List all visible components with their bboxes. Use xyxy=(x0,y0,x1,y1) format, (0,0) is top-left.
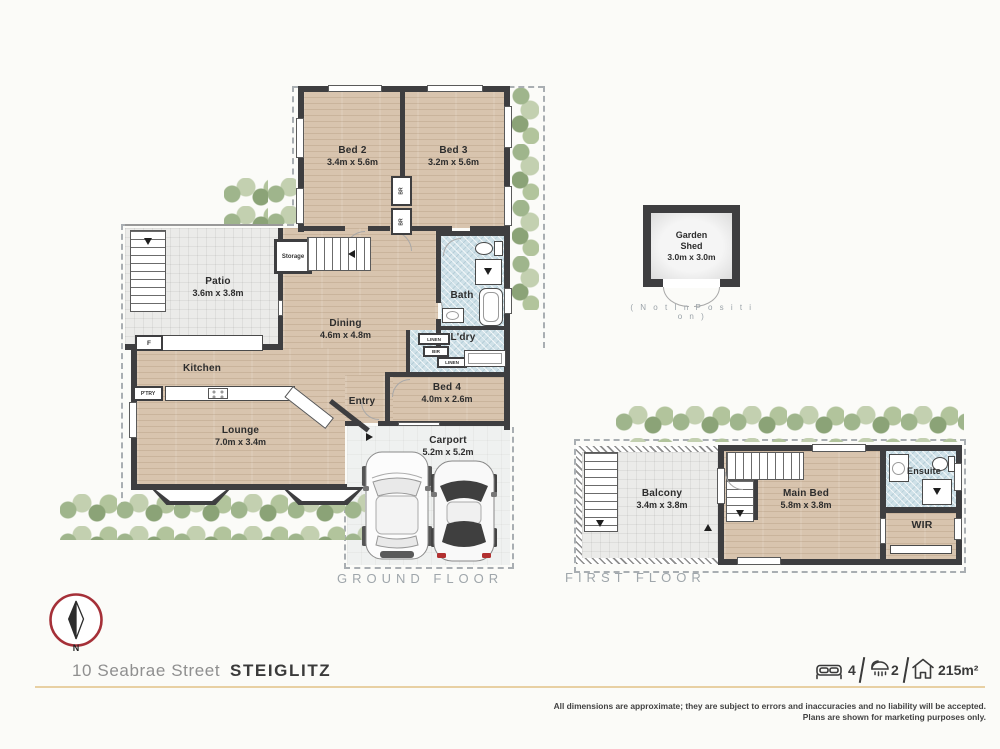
window xyxy=(812,444,866,452)
fridge-space: F xyxy=(135,335,163,351)
stair-arrow-left xyxy=(348,250,355,258)
compass-north-label: N xyxy=(73,643,80,653)
house-area-icon xyxy=(911,658,935,681)
car-sports xyxy=(431,460,497,562)
room-label-bed2: Bed 2 3.4m x 5.6m xyxy=(300,144,405,169)
shed-floor: Garden Shed 3.0m x 3.0m xyxy=(651,213,732,279)
wall xyxy=(436,326,506,330)
floor-area: 215m² xyxy=(938,662,978,678)
room-label-main-bed: Main Bed 5.8m x 3.8m xyxy=(742,487,870,512)
window xyxy=(504,288,512,314)
room-label-kitchen: Kitchen xyxy=(166,362,238,375)
shower-icon xyxy=(868,659,892,681)
kitchen-bench-lower xyxy=(165,386,295,401)
window xyxy=(398,422,440,426)
room-label-bed4: Bed 4 4.0m x 2.6m xyxy=(392,381,502,406)
pantry: P'TRY xyxy=(133,386,163,401)
footer: N 10 Seabrae Street STEIGLITZ 4 2 215m² … xyxy=(0,585,1000,749)
address-suburb: STEIGLITZ xyxy=(230,661,331,681)
baths-count: 2 xyxy=(891,662,899,678)
robe-br: BR xyxy=(391,208,412,235)
room-label-bed3: Bed 3 3.2m x 5.6m xyxy=(402,144,505,169)
wall xyxy=(385,372,508,377)
window xyxy=(954,463,962,491)
room-label-balcony: Balcony 3.4m x 3.8m xyxy=(606,487,718,512)
room-label-patio: Patio 3.6m x 3.8m xyxy=(162,275,274,300)
window xyxy=(504,106,512,148)
stair-arrow-up xyxy=(704,524,712,531)
wall xyxy=(278,316,283,346)
shed-note: ( N o t I n P o s i t i o n ) xyxy=(628,303,756,321)
wall xyxy=(368,226,390,231)
wall xyxy=(378,421,393,426)
toilet xyxy=(494,241,503,256)
boundary-dash xyxy=(344,567,514,569)
garden-strip-first-floor xyxy=(616,406,964,442)
linen-cupboard: LINEN xyxy=(437,357,467,368)
entry-step-arrow xyxy=(366,433,373,441)
room-label-dining: Dining 4.6m x 4.8m xyxy=(288,317,403,342)
garden-strip-right xyxy=(512,88,539,310)
stat-divider xyxy=(903,657,909,683)
stair-arrow-down xyxy=(144,238,152,245)
bed-icon xyxy=(815,659,843,681)
disclaimer-line1: All dimensions are approximate; they are… xyxy=(400,701,986,712)
balcony-door xyxy=(717,468,725,504)
shower-arrow xyxy=(933,488,941,495)
robe-br: BR xyxy=(391,176,412,206)
window xyxy=(954,518,962,540)
boundary-dash xyxy=(512,427,514,569)
boundary-dash xyxy=(543,86,545,348)
laundry-trough-inner xyxy=(468,353,502,364)
toilet-bowl xyxy=(475,242,493,255)
window xyxy=(129,402,137,438)
shower-arrow xyxy=(484,268,492,275)
bir-robe: BIR xyxy=(423,346,449,357)
wir-shelf xyxy=(890,545,952,554)
window xyxy=(504,186,512,226)
accent-rule xyxy=(35,686,985,688)
window xyxy=(737,557,781,565)
room-label-ensuite: Ensuite xyxy=(896,466,952,478)
patio-edge xyxy=(125,224,283,226)
wall xyxy=(303,226,345,231)
disclaimer-line2: Plans are shown for marketing purposes o… xyxy=(400,712,986,723)
vanity-basin xyxy=(446,311,459,320)
room-label-laundry: L'dry xyxy=(434,331,492,344)
shed-name: Garden Shed xyxy=(669,230,715,253)
stairs-hall xyxy=(307,237,371,271)
wall xyxy=(406,330,410,372)
compass: N xyxy=(47,592,107,654)
wir-door xyxy=(880,518,886,544)
window xyxy=(328,85,382,92)
stat-divider xyxy=(859,657,865,683)
first-floor-title: FIRST FLOOR xyxy=(565,570,706,585)
car-wagon xyxy=(362,450,432,562)
window xyxy=(427,85,483,92)
window xyxy=(296,188,304,224)
room-label-entry: Entry xyxy=(337,395,387,408)
room-label-bath: Bath xyxy=(438,289,486,302)
address-street: 10 Seabrae Street xyxy=(72,661,220,681)
shed-dims: 3.0m x 3.0m xyxy=(667,252,715,262)
wall xyxy=(436,231,510,236)
cooktop xyxy=(208,388,228,399)
ground-floor-title: GROUND FLOOR xyxy=(337,571,503,586)
room-label-carport: Carport 5.2m x 5.2m xyxy=(393,434,503,459)
garden-corner xyxy=(224,178,296,224)
stair-arrow-down xyxy=(596,520,604,527)
patio-door xyxy=(278,300,283,316)
boundary-dash xyxy=(121,224,123,508)
beds-count: 4 xyxy=(848,662,856,678)
room-label-wir: WIR xyxy=(898,519,946,533)
room-label-lounge: Lounge 7.0m x 3.4m xyxy=(183,424,298,449)
